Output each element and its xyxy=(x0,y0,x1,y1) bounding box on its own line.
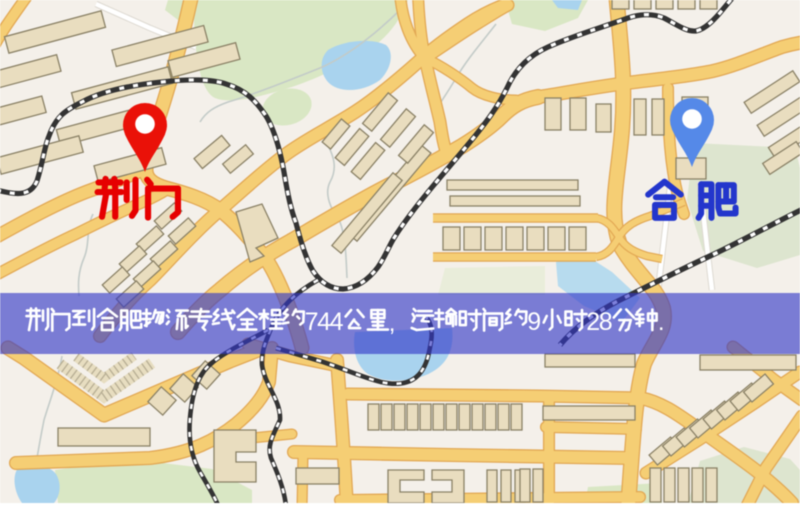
svg-text:9: 9 xyxy=(527,308,541,336)
svg-text:,: , xyxy=(389,310,396,337)
svg-text:8: 8 xyxy=(599,308,613,336)
svg-text:4: 4 xyxy=(330,308,344,336)
svg-text:.: . xyxy=(658,309,665,336)
